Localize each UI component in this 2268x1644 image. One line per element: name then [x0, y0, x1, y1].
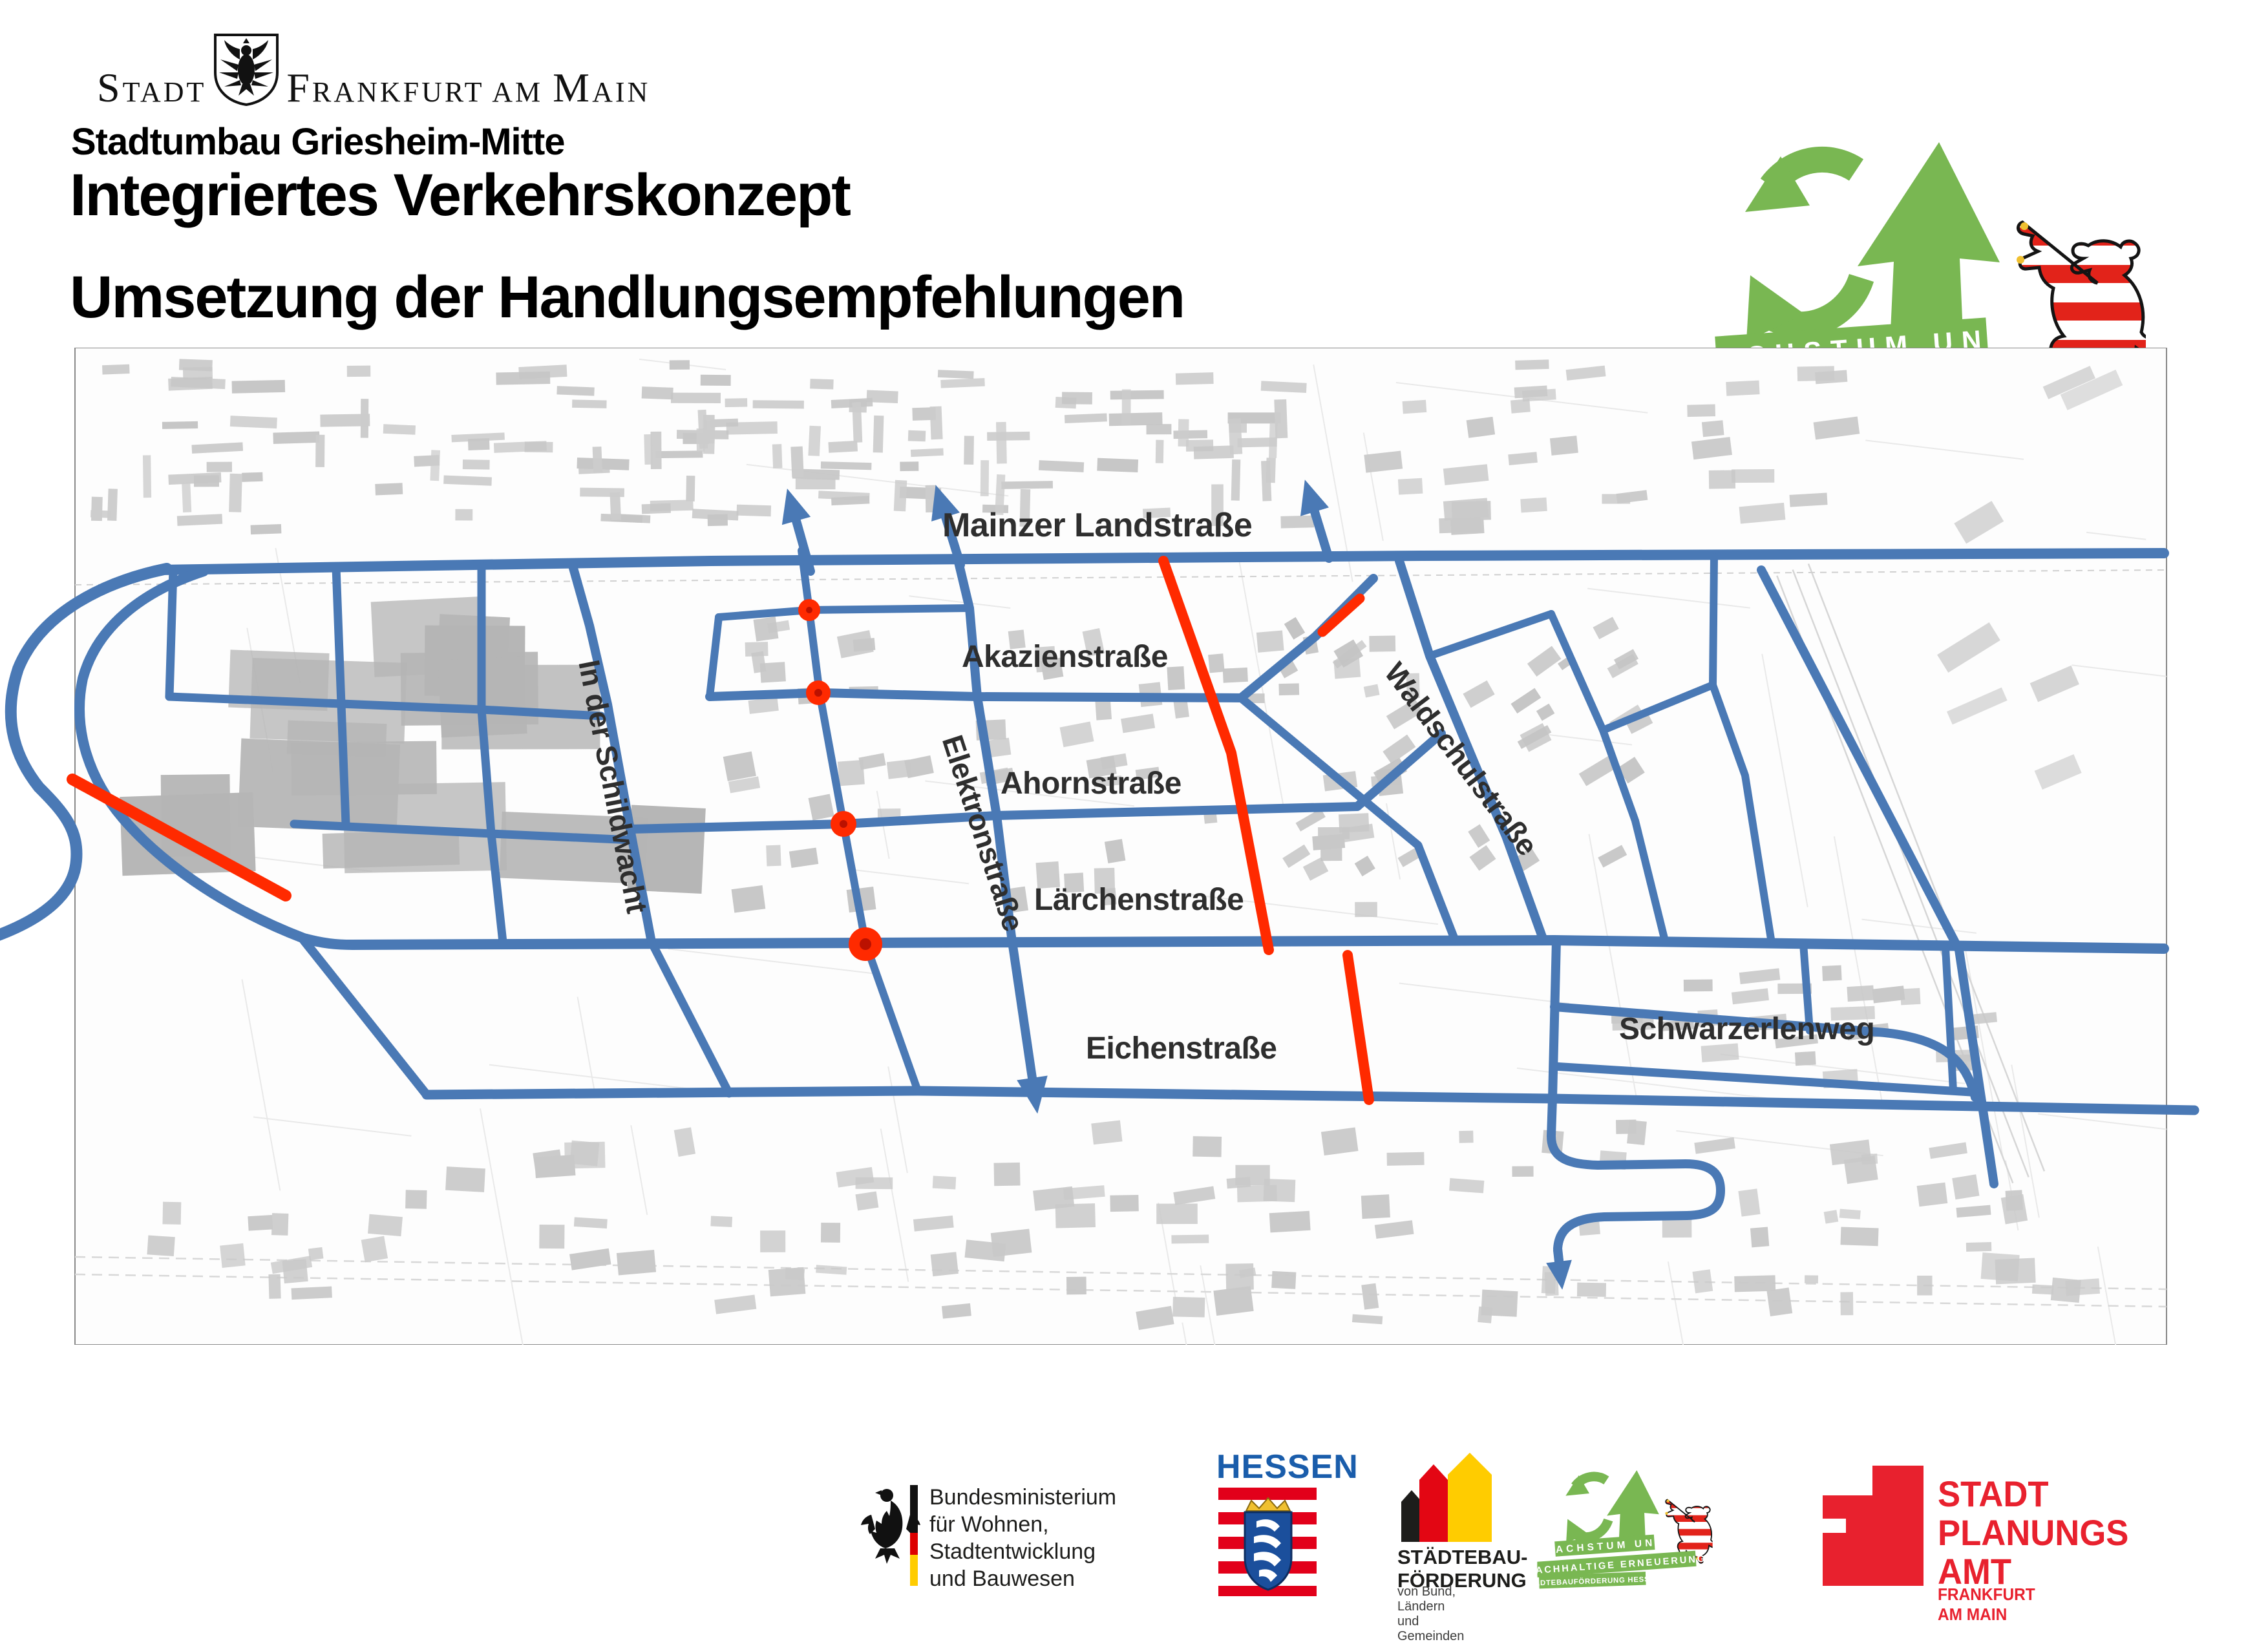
poster-title-verkehrskonzept: Integriertes Verkehrskonzept: [70, 162, 850, 229]
traffic-concept-map: Mainzer LandstraßeAkazienstraßeAhornstra…: [0, 348, 2268, 1345]
flag-bar-gold: [910, 1555, 918, 1586]
frankfurt-city-logo: STADT FRANKFURT AM MAIN: [97, 31, 650, 109]
road-waldschul-grid-5: [1713, 557, 1714, 685]
street-label: Schwarzerlenweg: [1619, 1012, 1874, 1046]
map-canvas: Mainzer LandstraßeAkazienstraßeAhornstra…: [0, 348, 2268, 1345]
hessen-wordmark: HESSEN: [1216, 1448, 1317, 1486]
city-logo-word-frankfurt: FRANKFURT AM MAIN: [286, 67, 650, 109]
flag-bar-black: [910, 1485, 918, 1533]
bmwsb-text: Bundesministerium für Wohnen, Stadtentwi…: [929, 1484, 1116, 1592]
street-label: Eichenstraße: [1086, 1031, 1277, 1066]
spa-wordmark: STADT PLANUNGS AMT: [1938, 1475, 2128, 1591]
stadtplanungsamt-mark-icon: [1823, 1466, 1924, 1586]
stadt-rest: TADT: [123, 76, 207, 108]
flag-bar-red: [910, 1533, 918, 1555]
program-logo-mini: [1537, 1458, 1713, 1600]
stf-subtext: von Bund, Ländern und Gemeinden: [1397, 1585, 1464, 1644]
poster: { "city_logo": { "word1": "Stadt", "word…: [0, 0, 2268, 1603]
house-triplet-icon: [1397, 1451, 1501, 1543]
street-label: Lärchenstraße: [1034, 883, 1244, 917]
poster-title-umsetzung: Umsetzung der Handlungsempfehlungen: [70, 264, 1184, 332]
street-label: Mainzer Landstraße: [942, 507, 1252, 544]
spa-subtext: FRANKFURT AM MAIN: [1938, 1585, 2035, 1625]
poster-subtitle: Stadtumbau Griesheim-Mitte: [71, 120, 565, 163]
street-label: Ahornstraße: [1001, 766, 1182, 801]
city-logo-word-stadt: STADT: [97, 67, 206, 109]
hessen-coat-of-arms-icon: [1235, 1497, 1302, 1594]
frankfurt-eagle-shield-icon: [213, 32, 280, 109]
street-label: Akazienstraße: [962, 640, 1168, 674]
road-gewerbe-v1: [169, 570, 173, 697]
